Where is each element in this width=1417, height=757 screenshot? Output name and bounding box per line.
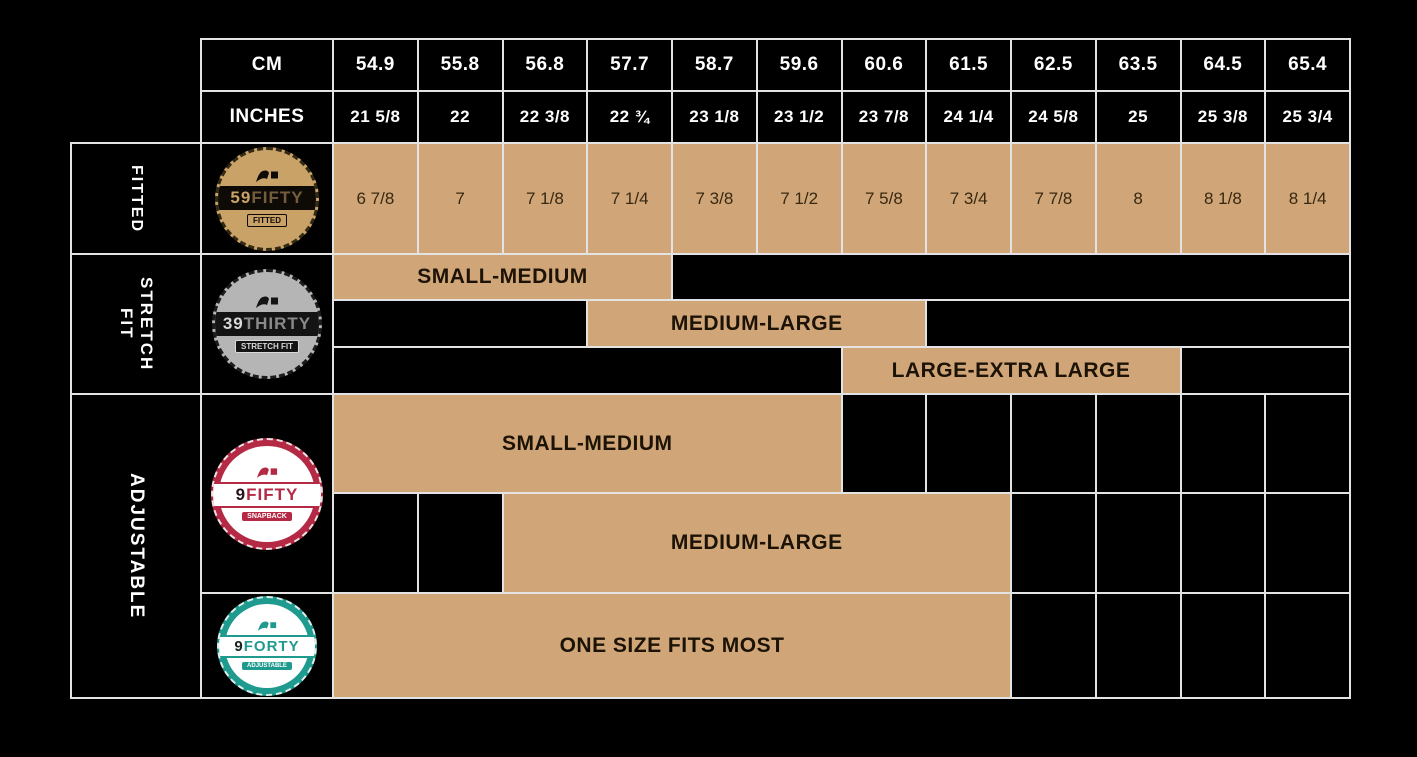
- new-era-flag-icon: [256, 467, 278, 478]
- size-chart-table: CM 54.9 55.8 56.8 57.7 58.7 59.6 60.6 61…: [72, 40, 1349, 697]
- 39thirty-badge-title: 39THIRTY: [212, 312, 322, 336]
- fitted-size-cell: 8 1/8: [1182, 144, 1265, 253]
- 59fifty-badge-subtitle: FITTED: [247, 214, 287, 227]
- cm-value-cell: 57.7: [588, 40, 671, 90]
- inches-value-cell: 23 1/8: [673, 92, 756, 142]
- stretch-band-large-extra-large: LARGE-EXTRA LARGE: [843, 348, 1180, 393]
- stretch-band-small-medium: SMALL-MEDIUM: [334, 255, 671, 299]
- 59fifty-logo-cell: 59FIFTY FITTED: [202, 144, 332, 253]
- row-label-stretch-text: STRETCH: [136, 277, 156, 371]
- cm-value-cell: 55.8: [419, 40, 502, 90]
- cm-value-cell: 64.5: [1182, 40, 1265, 90]
- inches-value-cell: 22: [419, 92, 502, 142]
- 9fifty-badge-subtitle: SNAPBACK: [242, 512, 292, 521]
- empty-range-cell: [334, 494, 417, 592]
- 39thirty-badge: 39THIRTY STRETCH FIT: [212, 269, 322, 379]
- row-label-stretch-fit: STRETCH FIT: [72, 255, 200, 393]
- 9fifty-badge-title: 9FIFTY: [211, 482, 323, 508]
- empty-range-cell: [334, 301, 586, 346]
- inches-value-cell: 22 3/8: [504, 92, 587, 142]
- cm-value-cell: 56.8: [504, 40, 587, 90]
- new-era-flag-icon: [255, 296, 279, 308]
- cm-value-cell: 61.5: [927, 40, 1010, 90]
- 9fifty-band-small-medium: SMALL-MEDIUM: [334, 395, 841, 492]
- empty-range-cell: [1266, 395, 1349, 492]
- empty-range-cell: [1266, 594, 1349, 697]
- 59fifty-badge-title: 59FIFTY: [215, 186, 319, 210]
- stretch-band-medium-large: MEDIUM-LARGE: [588, 301, 925, 346]
- empty-range-cell: [927, 301, 1349, 346]
- fitted-size-cell: 8: [1097, 144, 1180, 253]
- row-label-fit-text: FIT: [116, 277, 136, 371]
- empty-range-cell: [1097, 594, 1180, 697]
- empty-range-cell: [1097, 395, 1180, 492]
- cm-value-cell: 62.5: [1012, 40, 1095, 90]
- 9forty-band-one-size: ONE SIZE FITS MOST: [334, 594, 1010, 697]
- row-label-adjustable-text: ADJUSTABLE: [125, 473, 147, 619]
- empty-range-cell: [1182, 494, 1265, 592]
- 9forty-logo-cell: 9FORTY ADJUSTABLE: [202, 594, 332, 697]
- fitted-size-cell: 7: [419, 144, 502, 253]
- 9forty-badge-subtitle: ADJUSTABLE: [242, 662, 292, 670]
- inches-value-cell: 22 ¾: [588, 92, 671, 142]
- empty-range-cell: [1012, 395, 1095, 492]
- empty-range-cell: [1182, 395, 1265, 492]
- 9forty-badge: 9FORTY ADJUSTABLE: [217, 596, 317, 696]
- inches-value-cell: 23 7/8: [843, 92, 926, 142]
- inches-value-cell: 25 3/4: [1266, 92, 1349, 142]
- inches-header-cell: INCHES: [202, 92, 332, 142]
- fitted-size-cell: 7 1/4: [588, 144, 671, 253]
- row-label-fitted: FITTED: [72, 144, 200, 253]
- inches-value-cell: 23 1/2: [758, 92, 841, 142]
- cm-header-cell: CM: [202, 40, 332, 90]
- empty-range-cell: [1097, 494, 1180, 592]
- cm-value-cell: 65.4: [1266, 40, 1349, 90]
- 9fifty-badge: 9FIFTY SNAPBACK: [211, 438, 323, 550]
- inches-value-cell: 24 5/8: [1012, 92, 1095, 142]
- inches-value-cell: 21 5/8: [334, 92, 417, 142]
- fitted-size-cell: 7 1/8: [504, 144, 587, 253]
- empty-range-cell: [1182, 594, 1265, 697]
- fitted-size-cell: 7 7/8: [1012, 144, 1095, 253]
- 9forty-badge-title: 9FORTY: [217, 635, 317, 658]
- fitted-size-cell: 7 1/2: [758, 144, 841, 253]
- fitted-size-cell: 7 5/8: [843, 144, 926, 253]
- row-label-adjustable: ADJUSTABLE: [72, 395, 200, 697]
- empty-range-cell: [843, 395, 926, 492]
- inches-value-cell: 25: [1097, 92, 1180, 142]
- cm-value-cell: 59.6: [758, 40, 841, 90]
- cm-value-cell: 63.5: [1097, 40, 1180, 90]
- empty-range-cell: [419, 494, 502, 592]
- fitted-size-cell: 8 1/4: [1266, 144, 1349, 253]
- cm-value-cell: 54.9: [334, 40, 417, 90]
- fitted-size-cell: 7 3/4: [927, 144, 1010, 253]
- inches-value-cell: 24 1/4: [927, 92, 1010, 142]
- 39thirty-logo-cell: 39THIRTY STRETCH FIT: [202, 255, 332, 393]
- 9fifty-band-medium-large: MEDIUM-LARGE: [504, 494, 1011, 592]
- empty-range-cell: [1012, 494, 1095, 592]
- empty-range-cell: [1012, 594, 1095, 697]
- empty-range-cell: [927, 395, 1010, 492]
- 9fifty-logo-cell: 9FIFTY SNAPBACK: [202, 395, 332, 592]
- new-era-flag-icon: [257, 621, 277, 631]
- row-label-fitted-text: FITTED: [127, 165, 145, 233]
- empty-range-cell: [673, 255, 1349, 299]
- cm-value-cell: 58.7: [673, 40, 756, 90]
- inches-value-cell: 25 3/8: [1182, 92, 1265, 142]
- fitted-size-cell: 6 7/8: [334, 144, 417, 253]
- 59fifty-badge: 59FIFTY FITTED: [215, 147, 319, 251]
- 39thirty-badge-subtitle: STRETCH FIT: [235, 340, 299, 353]
- cm-value-cell: 60.6: [843, 40, 926, 90]
- new-era-flag-icon: [255, 170, 279, 182]
- empty-range-cell: [1182, 348, 1350, 393]
- fitted-size-cell: 7 3/8: [673, 144, 756, 253]
- empty-range-cell: [1266, 494, 1349, 592]
- empty-range-cell: [334, 348, 841, 393]
